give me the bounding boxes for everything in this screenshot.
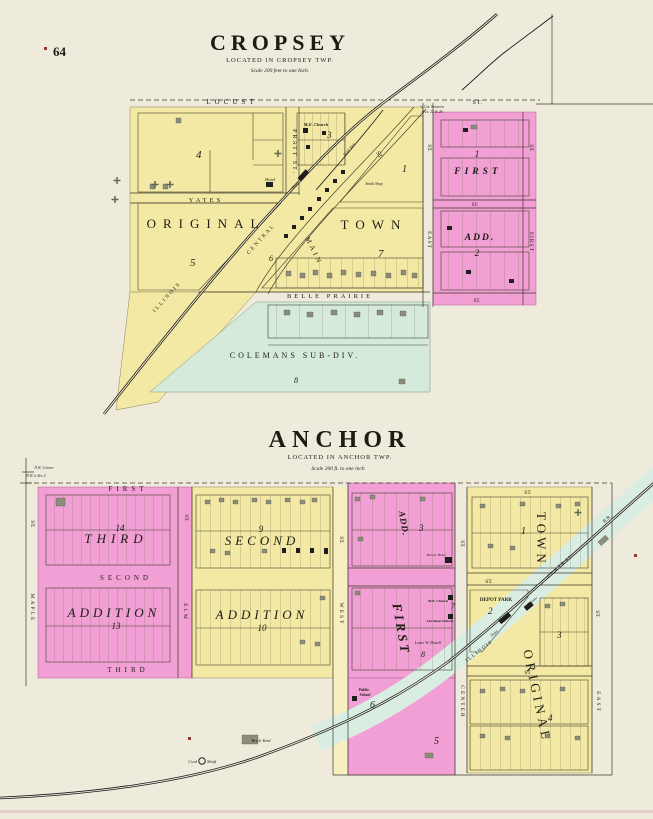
west-st-label: ST. <box>338 536 344 544</box>
page-number: 64 <box>53 44 67 59</box>
third-addition-label-1: THIRD <box>84 531 147 546</box>
anchor-block-14-number: 14 <box>116 523 126 533</box>
original-town-label-1: ORIGINAL <box>147 216 266 231</box>
first-add-block-2-number: 2 <box>475 249 480 259</box>
maple-street-label: MAPLE <box>29 594 35 623</box>
cropsey-corner-note-1: ¼ Cor. between <box>420 105 444 109</box>
plat-map-svg: 64 CROPSEY LOCATED IN CROPSEY TWP. Scale… <box>0 0 653 819</box>
cropsey-hotel-label: Hotel <box>264 177 276 182</box>
anchor-title: ANCHOR <box>269 427 412 453</box>
cropsey-block-1-number: 1 <box>402 164 407 175</box>
cropsey-block-8-number: 8 <box>294 376 298 385</box>
depot-park-label: DEPOT PARK <box>480 598 512 603</box>
first-add-st-mid-label: ST. <box>472 203 479 208</box>
first-street-label: FIRST <box>108 485 147 493</box>
cropsey-title: CROPSEY <box>210 30 350 55</box>
locust-st-label: ST. <box>472 100 483 106</box>
east-st-upper-label-anchor: ST. <box>594 610 600 618</box>
cropsey-block-6-number: 6 <box>269 254 273 263</box>
public-school-label-1: Public <box>359 688 370 692</box>
yates-street-label: YATES <box>189 197 224 204</box>
first-st-upper-label: ST. <box>528 144 534 152</box>
anchor-me-church-label: M.E. Church <box>428 599 448 603</box>
cropsey-corner-note-2: Secs. 25 & 26 <box>421 110 442 114</box>
west-street-label: WEST <box>338 603 344 626</box>
first-add-st-bottom-label: ST. <box>474 299 481 304</box>
public-school-label-2: School <box>360 693 371 697</box>
first-add-label-1: FIRST <box>453 167 501 177</box>
anchor-block-3-first-number: 3 <box>418 523 424 533</box>
first-street-label: FIRST <box>528 232 534 252</box>
anchor-scale-note: Scale 200 ft. to one inch <box>311 465 364 472</box>
first-add-block-1-number: 1 <box>475 150 480 160</box>
center-st-upper-label: ST. <box>459 540 465 548</box>
cropsey-block-3-number: 3 <box>326 130 332 140</box>
anchor-st-top-label: ST. <box>524 490 532 496</box>
center-street-label: CENTER <box>459 685 465 718</box>
anchor-block-13-number: 13 <box>112 621 122 631</box>
brick-yard-label: Brick Yard <box>251 738 271 743</box>
elm-street-label: ELM <box>182 603 188 621</box>
second-addition-label-1: SECOND <box>225 533 300 548</box>
cropsey-subtitle: LOCATED IN CROPSEY TWP. <box>226 57 334 64</box>
belle-prairie-street-label: BELLE PRAIRIE <box>287 293 373 300</box>
atlas-page: 64 CROPSEY LOCATED IN CROPSEY TWP. Scale… <box>0 0 653 819</box>
east-st-upper-label: ST. <box>426 144 432 152</box>
me-church-label: M.E. Church <box>303 122 329 127</box>
first-add-row-2 <box>441 158 529 196</box>
elm-st-label: ST. <box>183 514 189 522</box>
original-town-label-2: TOWN <box>341 217 408 232</box>
anchor-st-mid-label: ST. <box>485 579 493 585</box>
locust-street-label: LOCUST <box>206 98 257 106</box>
coal-shaft-label-left: Coal <box>188 759 198 764</box>
third-street-label: THIRD <box>107 666 148 674</box>
pratt-street-label: PRATT ST. <box>291 129 297 175</box>
second-addition-label-2: ADDITION <box>215 607 309 622</box>
anchor-block-5-number: 5 <box>434 736 439 747</box>
smith-shop-label: Smith Shop <box>365 182 382 186</box>
anchor-block-2-number: 2 <box>488 606 493 616</box>
anchor-corner-note-1: N.W. Corner <box>33 466 54 470</box>
coal-shaft-label-right: Shaft <box>207 759 217 764</box>
anchor-block-3-orig-number: 3 <box>556 630 562 640</box>
first-add-row-4 <box>441 252 529 290</box>
anchor-block-13 <box>46 588 170 662</box>
anchor-block-4-number: 4 <box>548 713 553 723</box>
anchor-block-10-number: 10 <box>258 623 268 633</box>
colemans-subdiv-label: COLEMANS SUB-DIV. <box>230 351 360 360</box>
anchor-subtitle: LOCATED IN ANCHOR TWP. <box>288 454 393 461</box>
third-addition-label-2: ADDITION <box>67 605 161 620</box>
cropsey-block-7-number: 7 <box>378 248 384 260</box>
anchor-block-1-number: 1 <box>521 526 526 537</box>
page-edge-tint <box>0 810 653 813</box>
second-street-label: SECOND <box>100 574 152 582</box>
anchor-block-8-number: 8 <box>421 650 425 659</box>
anchor-block-6-number: 6 <box>370 700 375 711</box>
colemans-lot-row <box>268 305 428 338</box>
first-add-label-2: ADD. <box>464 233 495 243</box>
east-street-label: EAST <box>426 231 432 249</box>
east-street-label-anchor: EAST <box>595 691 601 713</box>
cropsey-block-5-number: 5 <box>190 257 196 269</box>
anchor-hotel-label: Harvey Hotel <box>426 553 446 557</box>
anchor-block-4-row-2 <box>470 726 588 770</box>
anchor-town-label: TOWN <box>534 512 549 567</box>
anchor-corner-note-2: N.W.¼ Sec.2 <box>25 474 45 478</box>
cropsey-block-4-number: 4 <box>196 149 202 161</box>
maple-st-label: ST. <box>29 520 35 528</box>
cropsey-scale-note: Scale 200 feet to one Inch. <box>251 67 309 74</box>
anchor-christian-church-label: Christian Church <box>427 619 454 623</box>
first-add-row-1 <box>441 120 529 147</box>
anchor-block-9-number: 9 <box>259 524 264 534</box>
dazell-label: Louis W. Dazell <box>414 640 442 645</box>
